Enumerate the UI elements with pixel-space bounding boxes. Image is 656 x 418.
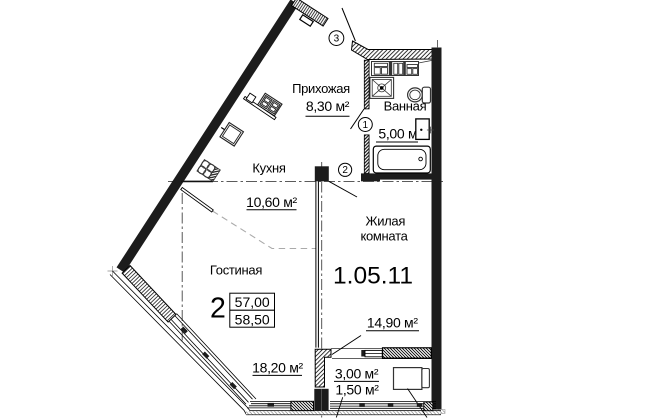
svg-text:14,90 м²: 14,90 м²	[367, 314, 418, 330]
svg-text:18,20 м²: 18,20 м²	[252, 359, 303, 375]
svg-text:3,00 м²: 3,00 м²	[335, 365, 379, 381]
svg-text:2: 2	[210, 293, 226, 325]
svg-text:комната: комната	[360, 229, 408, 244]
svg-text:2: 2	[342, 165, 348, 176]
svg-text:1,50 м²: 1,50 м²	[335, 381, 379, 397]
svg-text:8,30 м²: 8,30 м²	[306, 98, 350, 114]
svg-text:1: 1	[363, 120, 369, 131]
svg-text:3: 3	[334, 34, 340, 45]
svg-text:Ванная: Ванная	[384, 99, 427, 114]
svg-text:10,60 м²: 10,60 м²	[246, 194, 297, 210]
svg-text:58,50: 58,50	[235, 311, 270, 327]
svg-text:Гостиная: Гостиная	[210, 263, 262, 278]
svg-text:Кухня: Кухня	[252, 161, 286, 176]
svg-text:57,00: 57,00	[235, 294, 270, 310]
svg-text:Жилая: Жилая	[365, 214, 405, 229]
svg-text:Прихожая: Прихожая	[292, 81, 350, 96]
svg-text:1.05.11: 1.05.11	[333, 263, 413, 290]
